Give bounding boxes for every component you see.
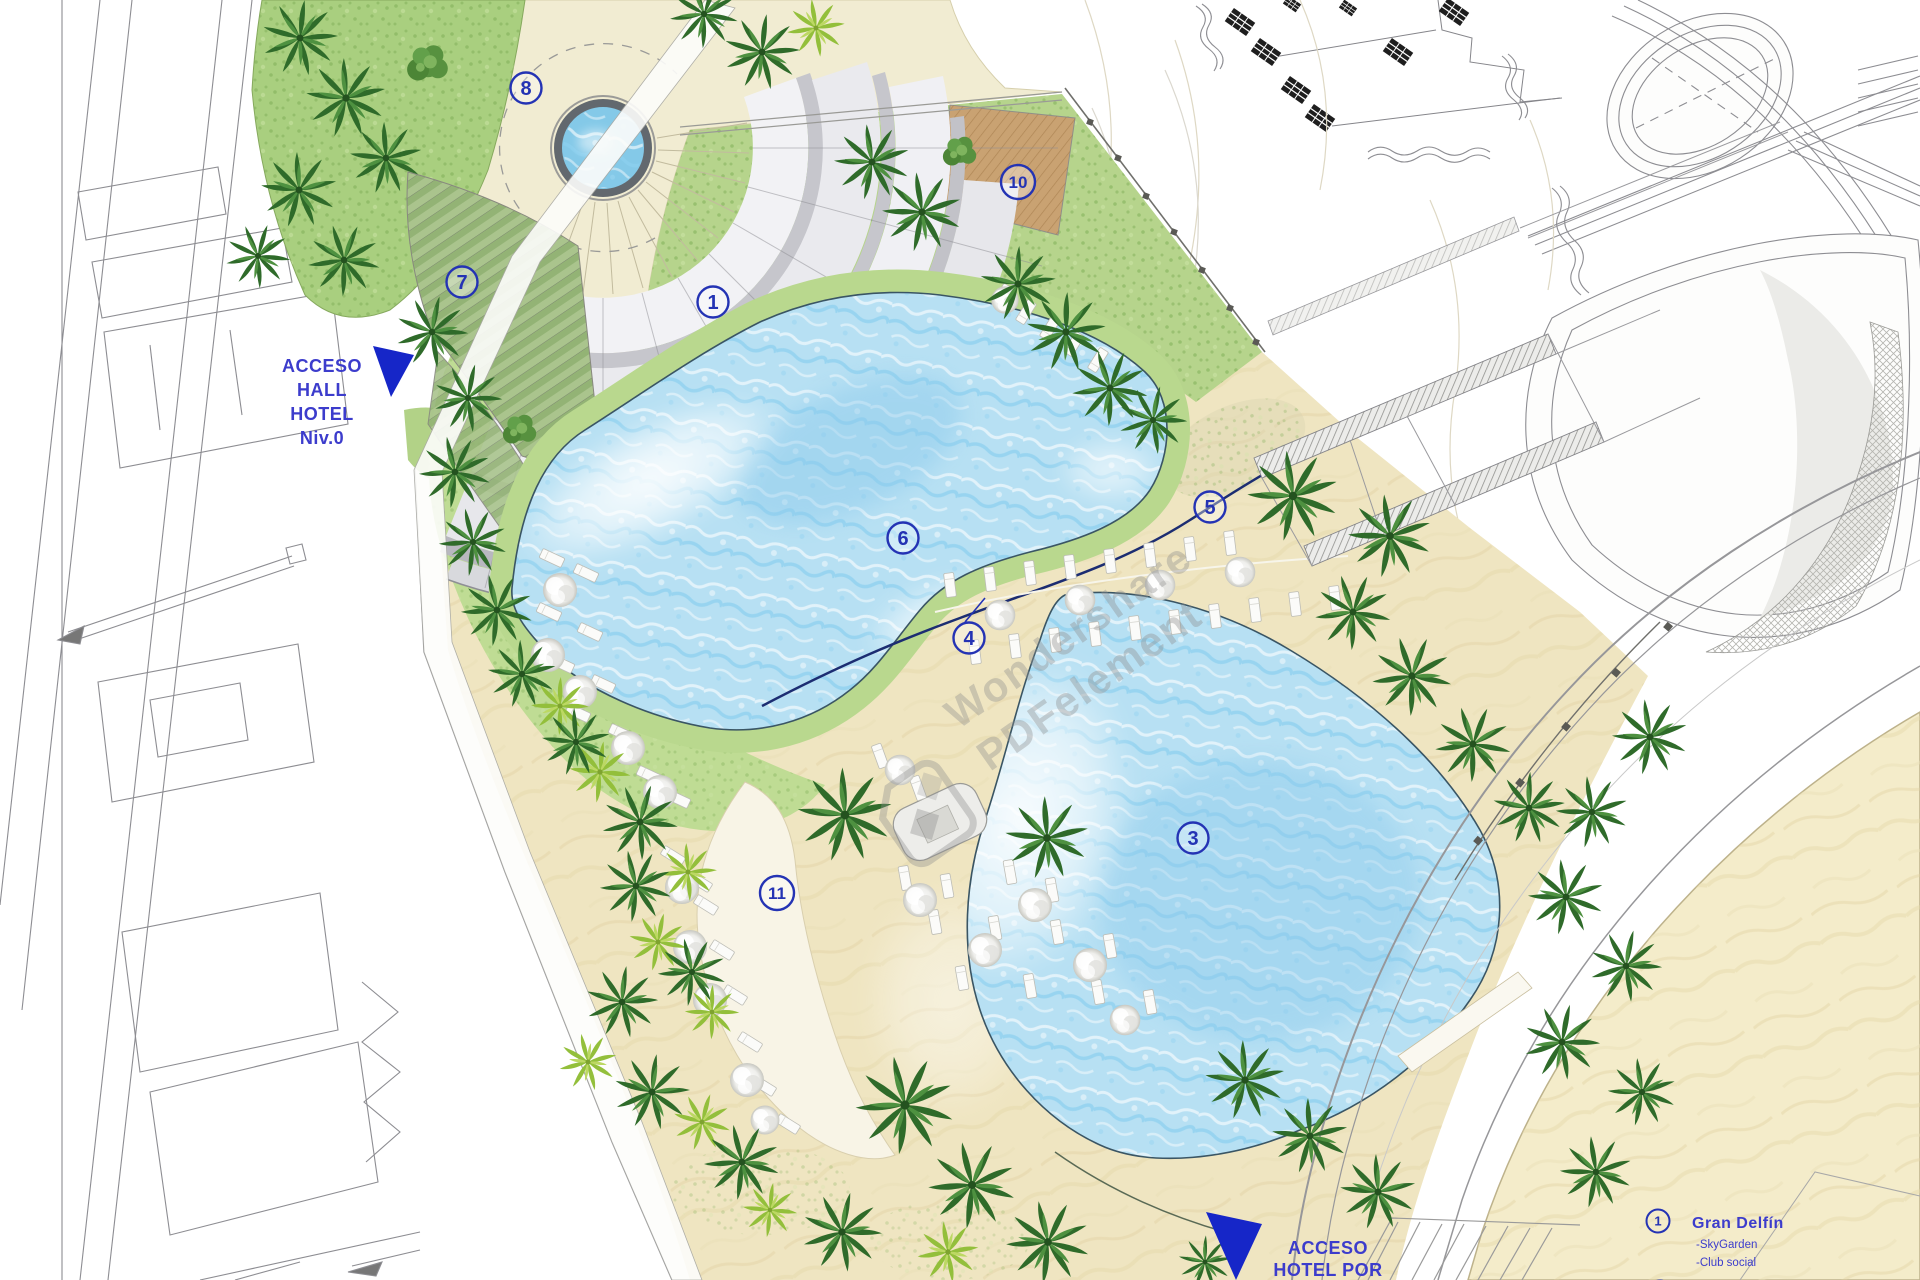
access-hall-line4: Niv.0 — [300, 428, 344, 448]
access-hotel-line1: ACCESO — [1288, 1238, 1368, 1258]
svg-text:10: 10 — [1009, 173, 1028, 192]
legend-item-1-num: 1 — [1654, 1214, 1661, 1229]
legend-item-1-detail-2: -Club social — [1696, 1257, 1756, 1269]
svg-text:7: 7 — [456, 272, 467, 294]
marker-10: 10 — [1001, 165, 1035, 199]
resort-site-plan-page: 1 3 4 5 6 7 8 10 11 ACCESO HALL HOTEL Ni… — [0, 0, 1920, 1280]
access-hotel-line2: HOTEL POR — [1273, 1260, 1382, 1280]
svg-text:8: 8 — [520, 78, 531, 100]
access-hall-line1: ACCESO — [282, 356, 362, 376]
access-hall-line2: HALL — [297, 380, 347, 400]
marker-3: 3 — [1178, 823, 1209, 854]
svg-text:6: 6 — [897, 528, 908, 550]
svg-text:11: 11 — [768, 884, 786, 903]
svg-text:4: 4 — [963, 628, 975, 650]
svg-text:1: 1 — [707, 292, 718, 314]
site-plan-drawing: 1 3 4 5 6 7 8 10 11 ACCESO HALL HOTEL Ni… — [0, 0, 1920, 1280]
marker-8: 8 — [511, 73, 542, 104]
access-hall-line3: HOTEL — [290, 404, 354, 424]
svg-text:3: 3 — [1187, 828, 1198, 850]
marker-11: 11 — [760, 876, 794, 910]
legend-item-1-detail-1: -SkyGarden — [1696, 1239, 1757, 1251]
svg-text:5: 5 — [1204, 497, 1215, 519]
legend-item-1-title: Gran Delfín — [1692, 1215, 1784, 1232]
marker-1: 1 — [698, 287, 729, 318]
marker-6: 6 — [888, 523, 919, 554]
marker-7: 7 — [447, 267, 478, 298]
marker-5: 5 — [1195, 492, 1226, 523]
